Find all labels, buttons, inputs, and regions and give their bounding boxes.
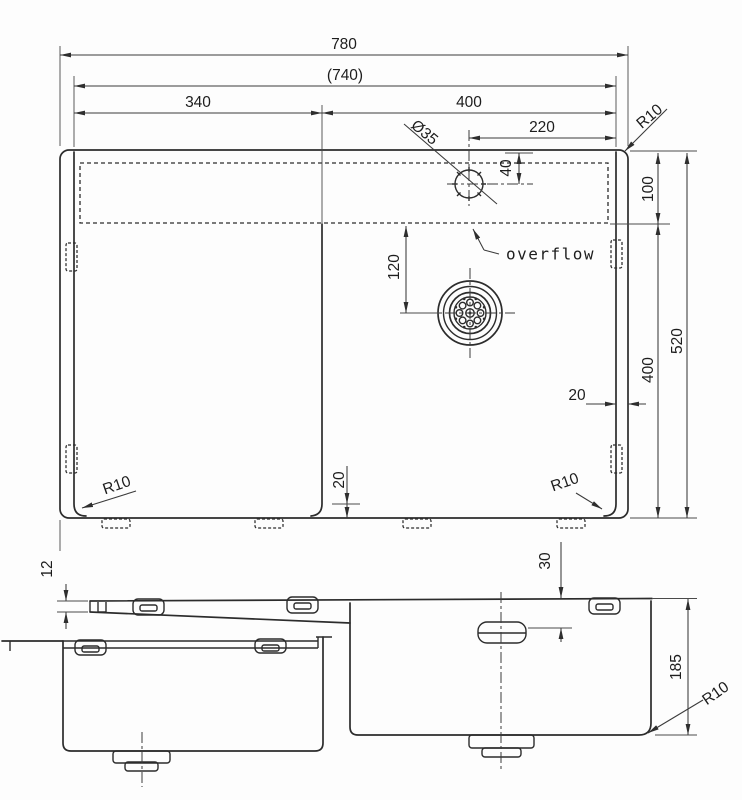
left-bowl-profile xyxy=(63,637,323,751)
dim-overall-width: 780 xyxy=(331,36,357,53)
drain-strainer-icon xyxy=(425,268,515,358)
dim-faucet-offset: 220 xyxy=(529,119,555,136)
extension-lines-top xyxy=(60,46,697,551)
dim-faucet-from-edge: 40 xyxy=(498,159,515,177)
dim-inner-width: (740) xyxy=(327,67,363,84)
front-view: 12 30 185 R10 xyxy=(2,542,733,787)
dim-drain-offset: 120 xyxy=(386,254,403,280)
bowl-right-wall xyxy=(604,152,616,516)
dim-overflow-from-rim: 30 xyxy=(537,552,554,570)
dim-edge-gap-right: 20 xyxy=(568,387,586,404)
dim-rim-thickness: 12 xyxy=(39,560,56,577)
dim-left-bowl-width: 340 xyxy=(185,94,211,111)
top-view: 780 (740) 340 400 220 Ø35 40 R10 100 400… xyxy=(60,36,697,551)
dimension-lines-front xyxy=(57,542,703,735)
dim-corner-front: R10 xyxy=(699,678,732,708)
dim-divider-gap: 20 xyxy=(331,471,348,489)
overflow-label: overflow xyxy=(506,245,595,264)
dim-bowl-front-depth: 400 xyxy=(640,357,657,383)
back-ledge-dashed xyxy=(80,163,608,223)
dim-overall-depth: 520 xyxy=(669,328,686,354)
back-rim-line xyxy=(90,599,652,602)
tray-end-notch xyxy=(98,602,106,612)
dim-right-bowl-width: 400 xyxy=(456,94,482,111)
overflow-opening-icon xyxy=(478,622,526,643)
rim-clips-front-view xyxy=(75,597,620,655)
bowl-divider xyxy=(311,224,322,516)
dim-ledge-depth: 100 xyxy=(640,176,657,202)
dim-corner-top-right: R10 xyxy=(633,101,666,133)
dim-bowl-depth: 185 xyxy=(668,654,685,680)
dimension-lines-top xyxy=(60,55,687,518)
sink-outer-outline xyxy=(60,150,628,518)
left-bowl-rim xyxy=(63,637,332,648)
drawing-svg: 780 (740) 340 400 220 Ø35 40 R10 100 400… xyxy=(0,0,742,800)
dim-faucet-hole-dia: Ø35 xyxy=(408,117,441,149)
dim-corner-bottom-left: R10 xyxy=(101,473,134,498)
sink-technical-drawing: 780 (740) 340 400 220 Ø35 40 R10 100 400… xyxy=(0,0,742,800)
dim-corner-bottom-right: R10 xyxy=(549,470,582,495)
bowl-left-wall xyxy=(74,152,86,516)
